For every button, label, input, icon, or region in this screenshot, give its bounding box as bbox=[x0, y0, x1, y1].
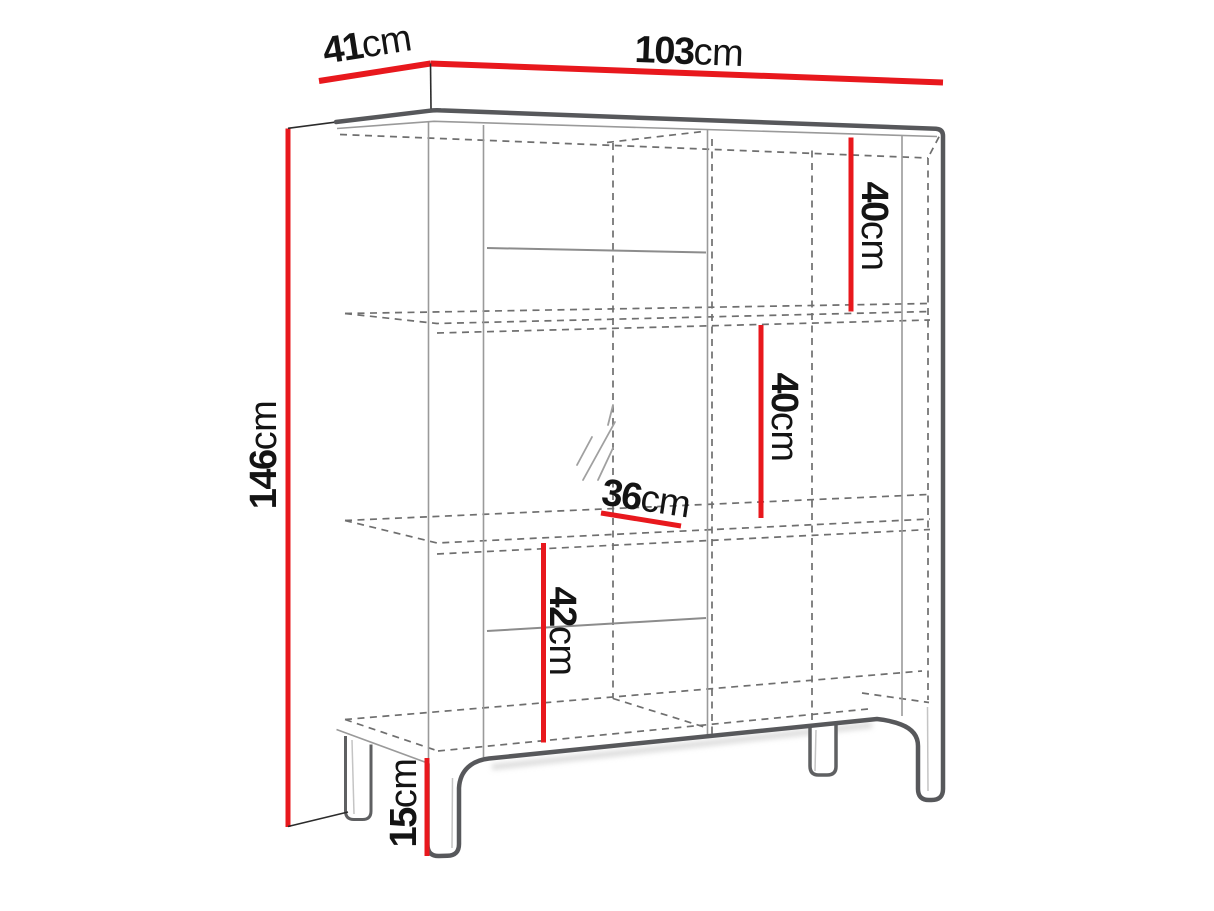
glass-reflection-stroke bbox=[577, 437, 592, 465]
label-height: 146cm bbox=[243, 401, 285, 510]
hidden-edge-shelf1-back bbox=[345, 304, 928, 314]
glass-reflection bbox=[577, 405, 615, 480]
label-depth: 41cm bbox=[320, 17, 414, 72]
tick-height-bottom bbox=[288, 812, 348, 827]
label-legs: 15cm bbox=[383, 759, 425, 848]
dimension-lines bbox=[288, 64, 943, 857]
glass-shelf-upper bbox=[487, 248, 706, 253]
visible-thin-edges bbox=[337, 121, 938, 763]
leg-front-left-highlight bbox=[452, 778, 453, 848]
label-lower-shelf: 42cm bbox=[541, 587, 583, 676]
glass-reflection-stroke bbox=[583, 422, 615, 480]
tick-top-corner bbox=[431, 64, 432, 109]
dimension-diagram: 41cm 103cm 146cm 40cm 40cm 36cm 42cm 15c… bbox=[0, 0, 1214, 911]
leg-back-right-highlight bbox=[815, 730, 816, 771]
leg-back-right bbox=[810, 725, 836, 776]
hidden-edge-divider1-top bbox=[607, 132, 703, 143]
cabinet-dimension-drawing: 41cm 103cm 146cm 40cm 40cm 36cm 42cm 15c… bbox=[0, 0, 1214, 911]
dimension-labels: 41cm 103cm 146cm 40cm 40cm 36cm 42cm 15c… bbox=[243, 17, 895, 847]
tick-height-top bbox=[288, 122, 334, 128]
leg-back-left bbox=[346, 736, 372, 820]
label-width: 103cm bbox=[634, 29, 744, 75]
dimension-ticks bbox=[288, 64, 431, 827]
hidden-edge-shelf2-front-bottom bbox=[437, 530, 930, 555]
hidden-edge-floor-back bbox=[345, 671, 922, 720]
hidden-edge-floor-right bbox=[862, 693, 929, 703]
hidden-edge-shelf2-front-top bbox=[345, 519, 930, 543]
glass-shelf-lower bbox=[487, 618, 706, 631]
leg-front-right-highlight bbox=[928, 707, 929, 791]
label-middle-shelf: 40cm bbox=[763, 373, 805, 462]
label-upper-shelf: 40cm bbox=[853, 182, 895, 271]
hidden-edge-floor-divider1 bbox=[613, 699, 706, 728]
